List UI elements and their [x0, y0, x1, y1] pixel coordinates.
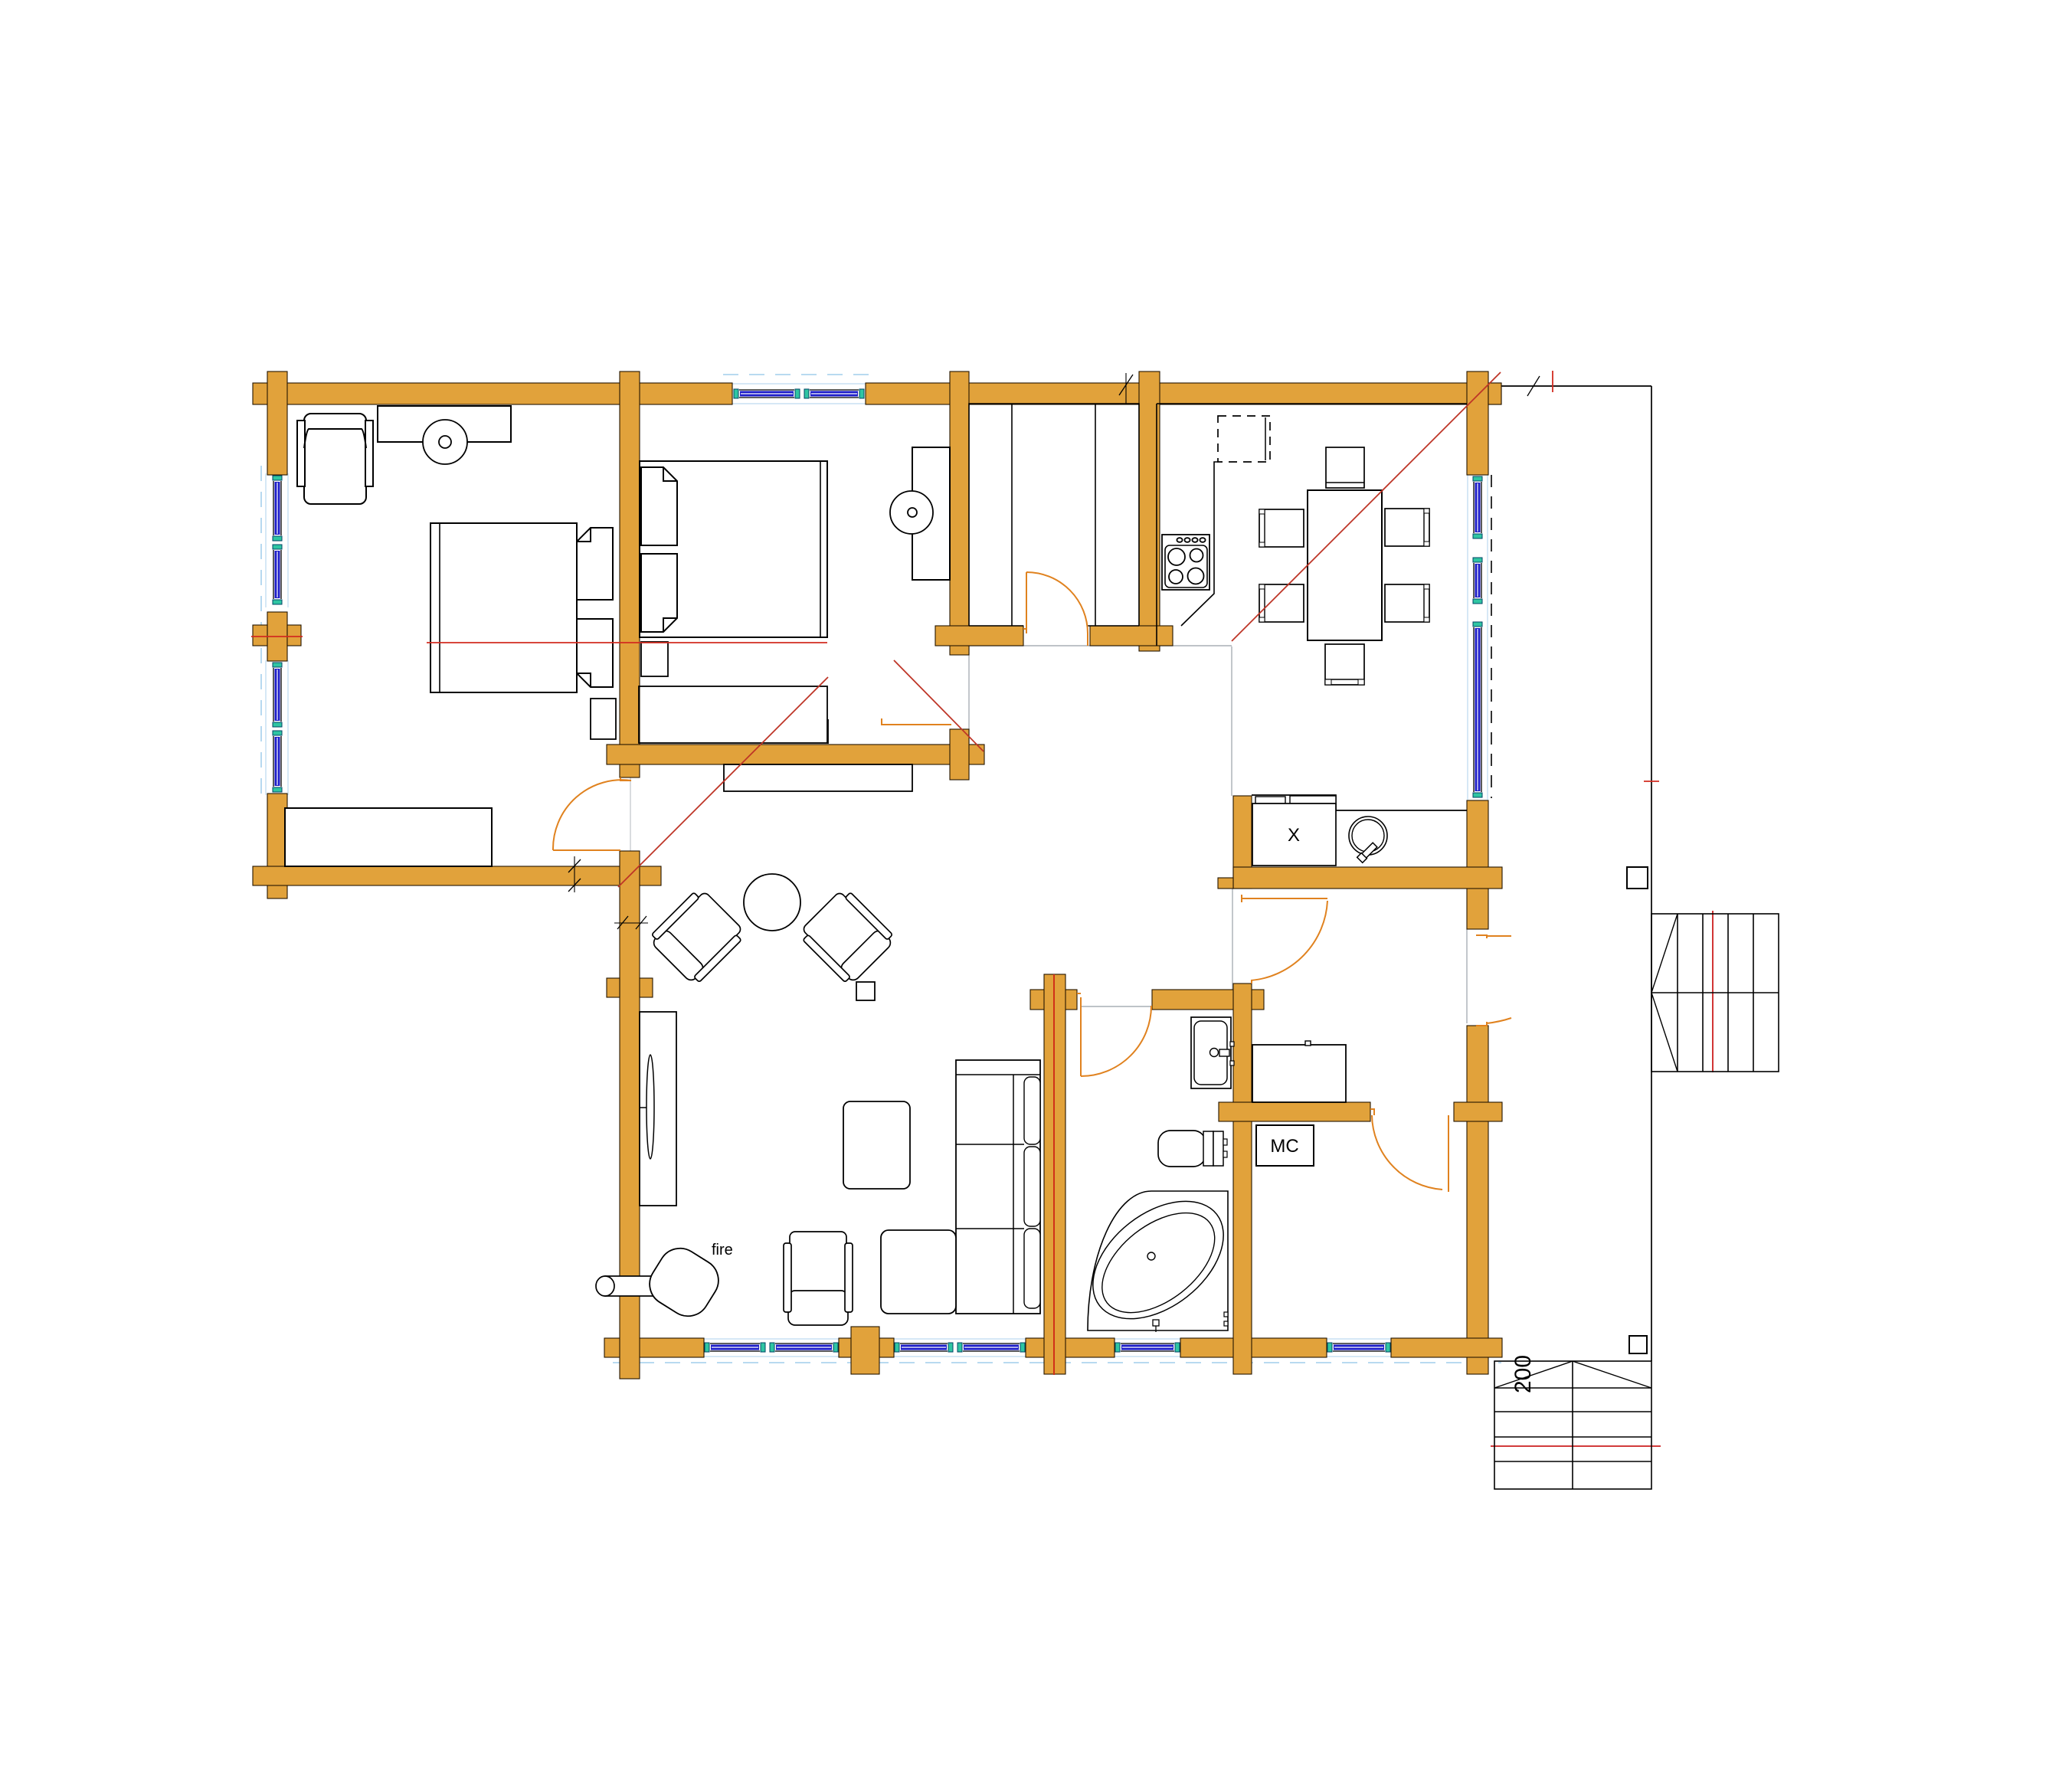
svg-text:X: X [1288, 825, 1300, 846]
svg-text:fire: fire [712, 1242, 733, 1258]
svg-text:MC: MC [1270, 1136, 1298, 1157]
svg-text:200: 200 [1511, 1355, 1536, 1393]
